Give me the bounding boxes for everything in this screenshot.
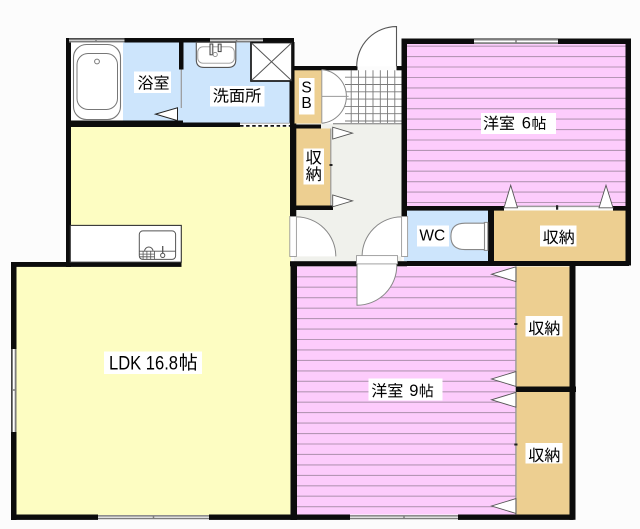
- svg-text:LDK 16.8: LDK 16.8: [109, 353, 178, 374]
- svg-text:S: S: [301, 79, 311, 96]
- svg-text:B: B: [301, 95, 311, 112]
- svg-text:9: 9: [409, 382, 418, 400]
- svg-text:WC: WC: [419, 228, 445, 245]
- svg-text:6: 6: [522, 115, 531, 133]
